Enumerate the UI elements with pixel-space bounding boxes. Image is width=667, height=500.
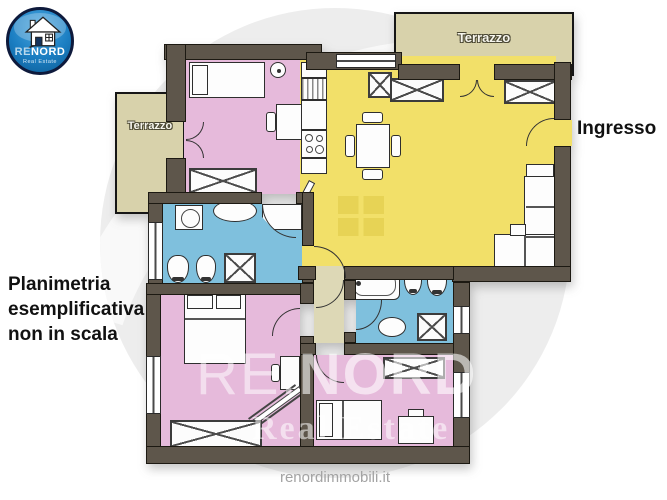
wardrobe-icon <box>170 420 262 448</box>
wall <box>554 62 571 120</box>
wall <box>452 266 571 282</box>
chair-icon <box>266 112 276 132</box>
wall <box>344 266 454 280</box>
wardrobe-icon <box>390 78 444 102</box>
wardrobe-icon <box>189 168 257 194</box>
watermark-nord: NORD <box>299 342 478 407</box>
kitchen-counter-icon <box>301 158 327 174</box>
sofa-cushion-line <box>526 206 554 208</box>
chair-icon <box>362 112 383 123</box>
disclaimer-text: Planimetria esemplificativa non in scala <box>8 272 144 347</box>
entrance-threshold <box>552 120 572 146</box>
logo-wordmark: RENORD <box>9 47 71 58</box>
washing-machine-icon <box>175 205 203 230</box>
wall <box>148 192 262 204</box>
wall <box>302 192 314 246</box>
sofa-armrest-icon <box>526 164 554 177</box>
stove-icon <box>301 130 327 158</box>
wall <box>166 158 186 194</box>
wall <box>146 283 314 295</box>
disclaimer-line-3: non in scala <box>8 322 144 347</box>
window <box>336 54 396 68</box>
window <box>453 306 470 334</box>
logo-nord: NORD <box>31 46 65 58</box>
wall <box>164 44 322 60</box>
terrace-left-label: Terrazzo <box>115 120 185 132</box>
logo-re: RE <box>15 46 31 58</box>
chair-icon <box>345 135 355 157</box>
window <box>146 356 161 414</box>
pillow-icon <box>187 295 213 309</box>
disclaimer-line-2: esemplificativa <box>8 297 144 322</box>
dining-table-icon <box>356 124 390 168</box>
bed-fold-line <box>185 318 245 320</box>
watermark-re: RE. <box>196 342 299 407</box>
wall <box>300 283 314 304</box>
kitchen-counter-icon <box>301 100 327 130</box>
window <box>148 222 163 280</box>
disclaimer-line-1: Planimetria <box>8 272 144 297</box>
entrance-label: Ingresso <box>577 118 656 140</box>
wall <box>398 64 460 80</box>
wall <box>146 446 470 464</box>
website-footer: renordimmobili.it <box>250 469 420 486</box>
watermark-estate: Real Estate <box>252 410 450 448</box>
sofa-cushion-line <box>524 236 526 266</box>
logo-subtitle: Real Estate <box>9 59 71 65</box>
lamp-icon <box>270 62 286 78</box>
sofa-armrest-icon <box>510 224 526 236</box>
wardrobe-icon <box>504 80 556 104</box>
terrace-top-label: Terrazzo <box>394 30 574 45</box>
window-glyph-icon <box>338 196 384 236</box>
chair-icon <box>391 135 401 157</box>
pillow-icon <box>192 65 208 95</box>
watermark-text: RE.NORD <box>196 346 477 404</box>
wall <box>344 280 356 300</box>
chair-icon <box>362 169 383 180</box>
renord-logo: RENORD Real Estate <box>6 7 74 75</box>
desk-icon <box>276 104 302 140</box>
kitchen-sink-icon <box>301 78 327 100</box>
wardrobe-icon <box>368 72 392 98</box>
house-icon <box>24 16 62 48</box>
pillow-icon <box>216 295 241 309</box>
wall <box>554 146 571 282</box>
shower-tray-icon <box>224 253 256 283</box>
wall <box>166 44 186 122</box>
washing-machine-icon <box>417 313 447 341</box>
page: Terrazzo Terrazzo RE.NORD Real Estate RE… <box>0 0 667 500</box>
sofa-cushion-line <box>526 236 554 238</box>
sink-icon <box>378 317 406 337</box>
